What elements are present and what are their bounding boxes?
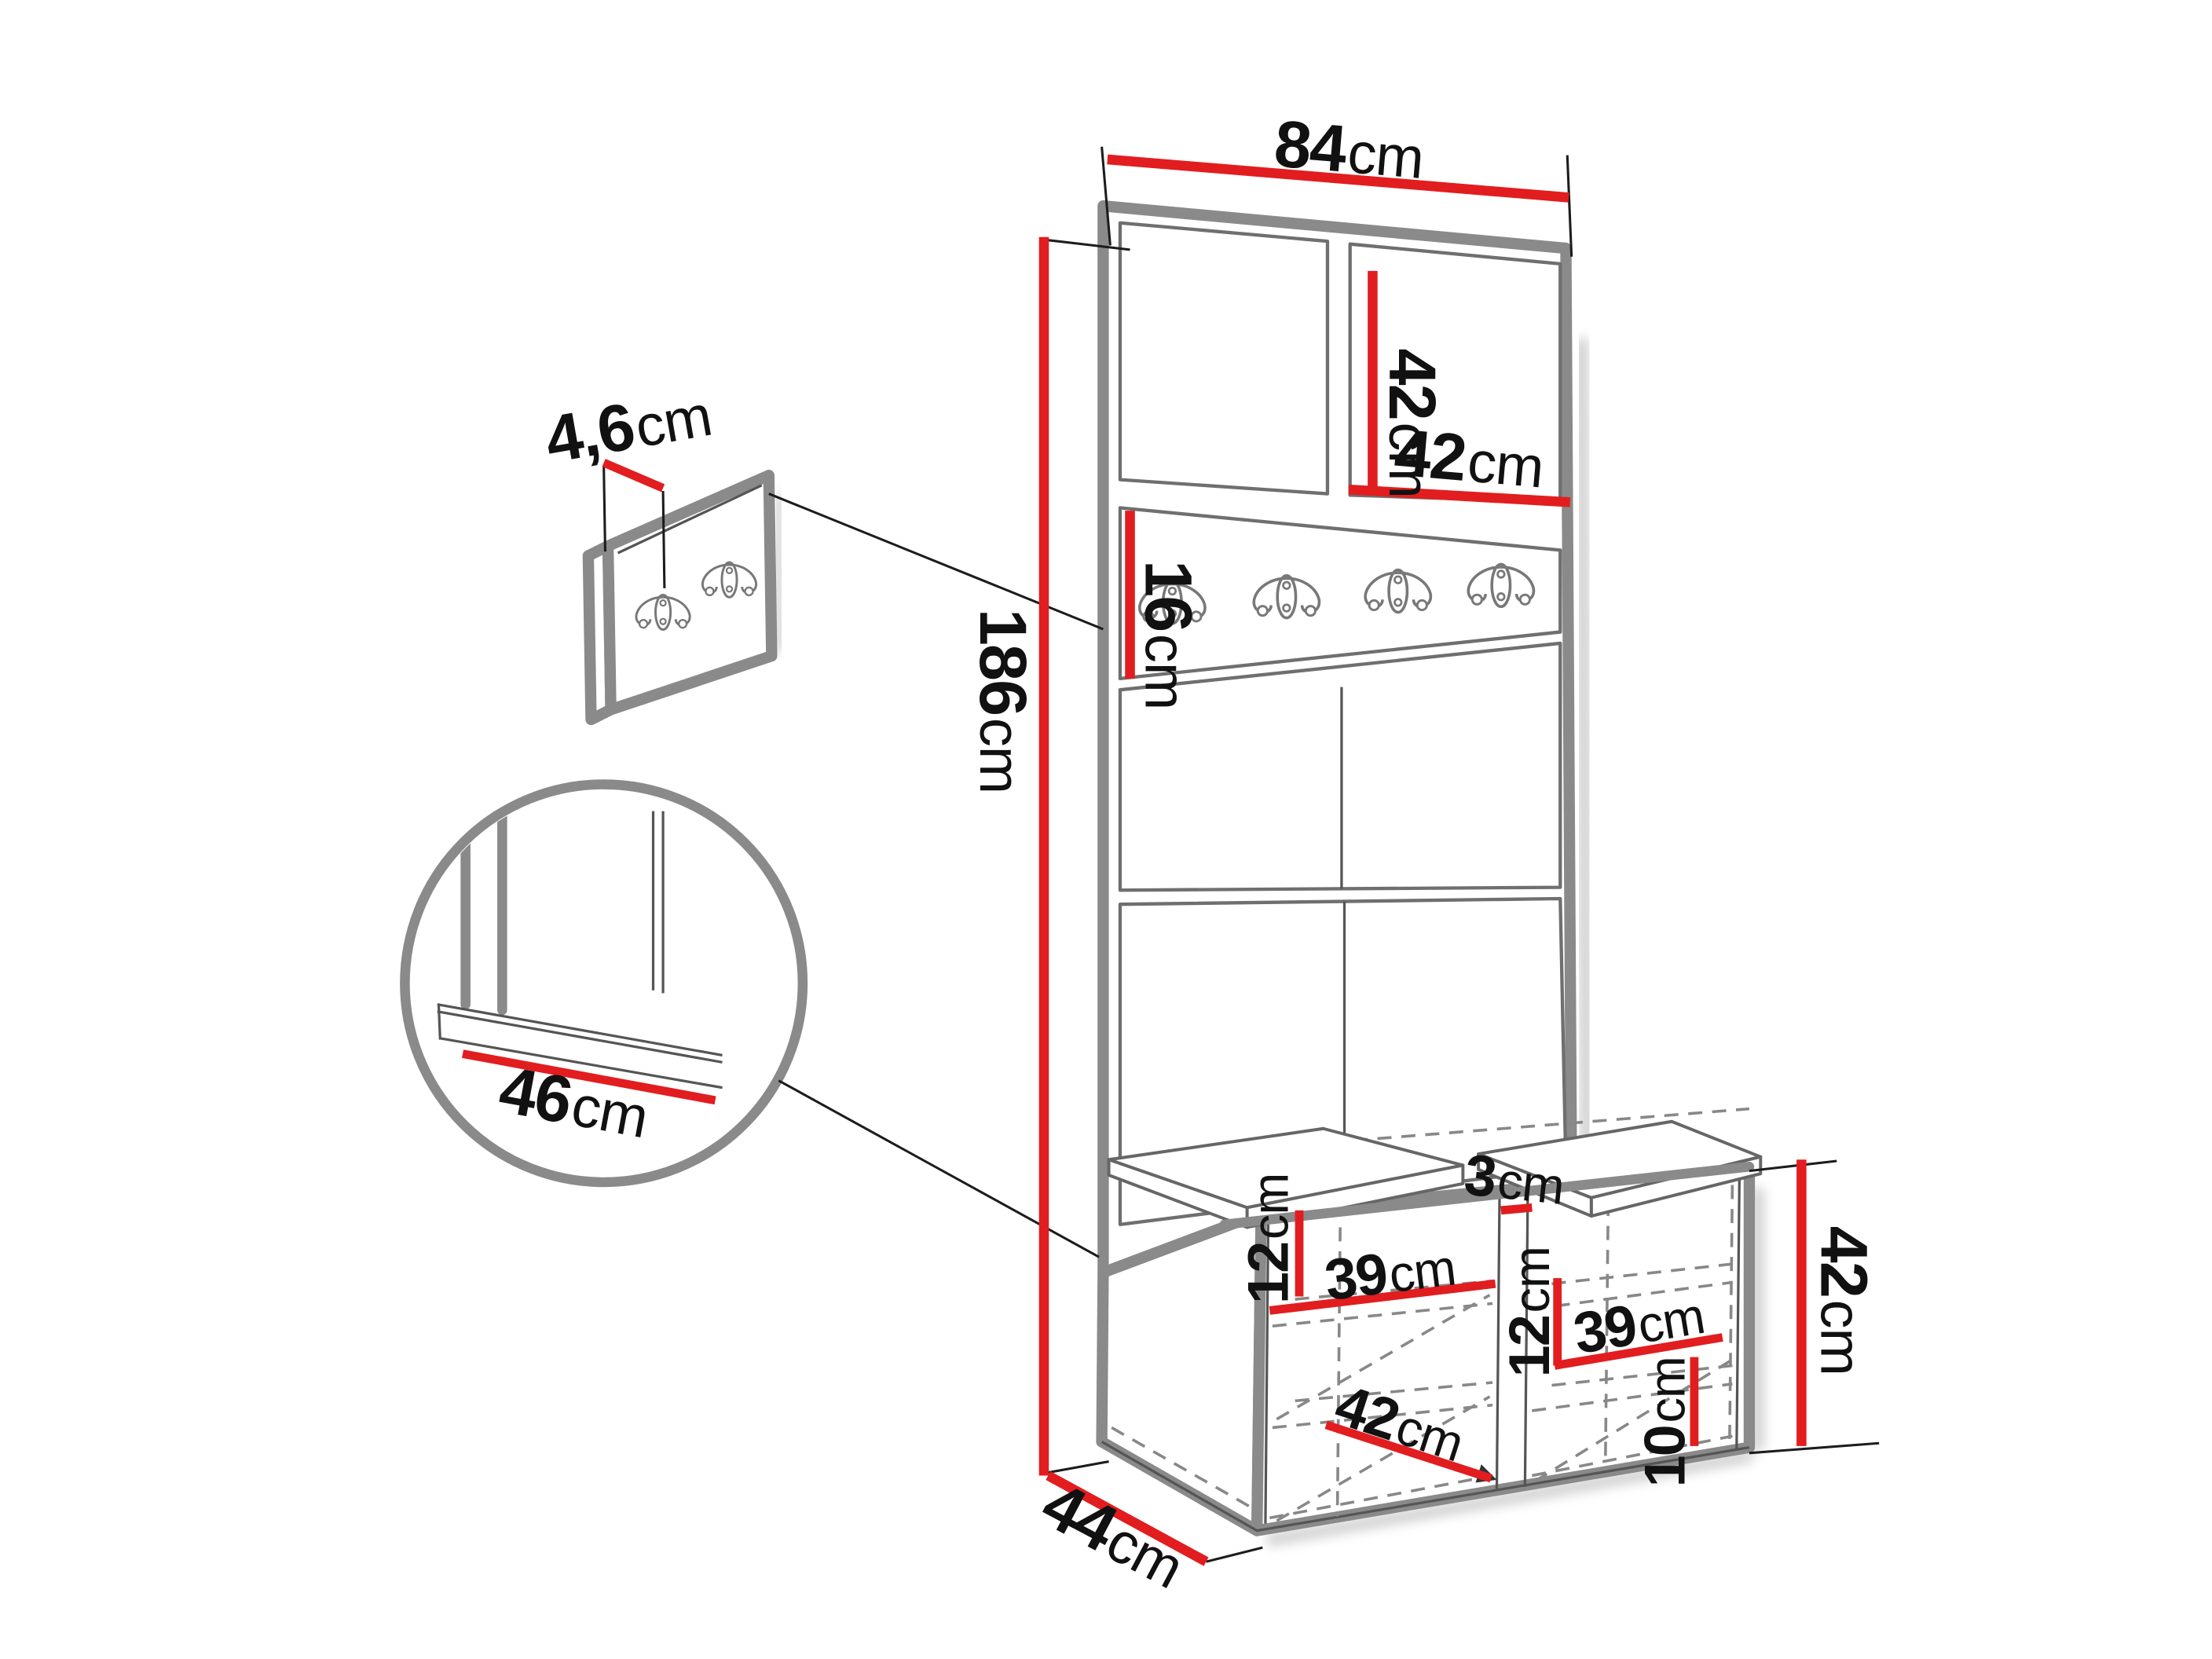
furniture-dimension-diagram: 84cm 42cm 42cm 16cm 4,6cm 186cm 46cm 12c… xyxy=(0,0,2212,1659)
diagram-stage: 84cm 42cm 42cm 16cm 4,6cm 186cm 46cm 12c… xyxy=(0,0,2212,1659)
leader-line-panel xyxy=(769,494,1104,629)
leader-line-circle xyxy=(778,1081,1099,1257)
dim-label-right-shelf-spacing: 12cm xyxy=(1496,1247,1562,1377)
ext-84-right xyxy=(1567,156,1571,257)
dim-label-bench-height: 42cm xyxy=(1807,1226,1881,1375)
dim-label-plinth-height: 10cm xyxy=(1632,1357,1697,1487)
wall-hook-panel xyxy=(588,475,771,720)
dim-label-panel-thickness: 4,6cm xyxy=(540,375,716,477)
panel-top-left xyxy=(1120,223,1328,494)
ext-bench42-bottom xyxy=(1749,1443,1879,1453)
ext-44-right xyxy=(1207,1547,1263,1562)
ext-186-bottom xyxy=(1047,1462,1109,1473)
ext-46panel-right xyxy=(663,491,665,588)
dim-label-total-height: 186cm xyxy=(966,609,1040,793)
panel-shadow xyxy=(778,494,781,652)
dim-line-panel-thickness xyxy=(604,463,663,488)
dim-label-hook-rail-height: 16cm xyxy=(1131,560,1205,709)
ext-46panel-left xyxy=(604,467,606,551)
dim-label-top-width: 84cm xyxy=(1272,106,1426,192)
dim-label-left-shelf-spacing: 12cm xyxy=(1236,1174,1301,1304)
unit-shadow xyxy=(1581,339,1587,1182)
ext-bench42-top xyxy=(1749,1161,1837,1171)
